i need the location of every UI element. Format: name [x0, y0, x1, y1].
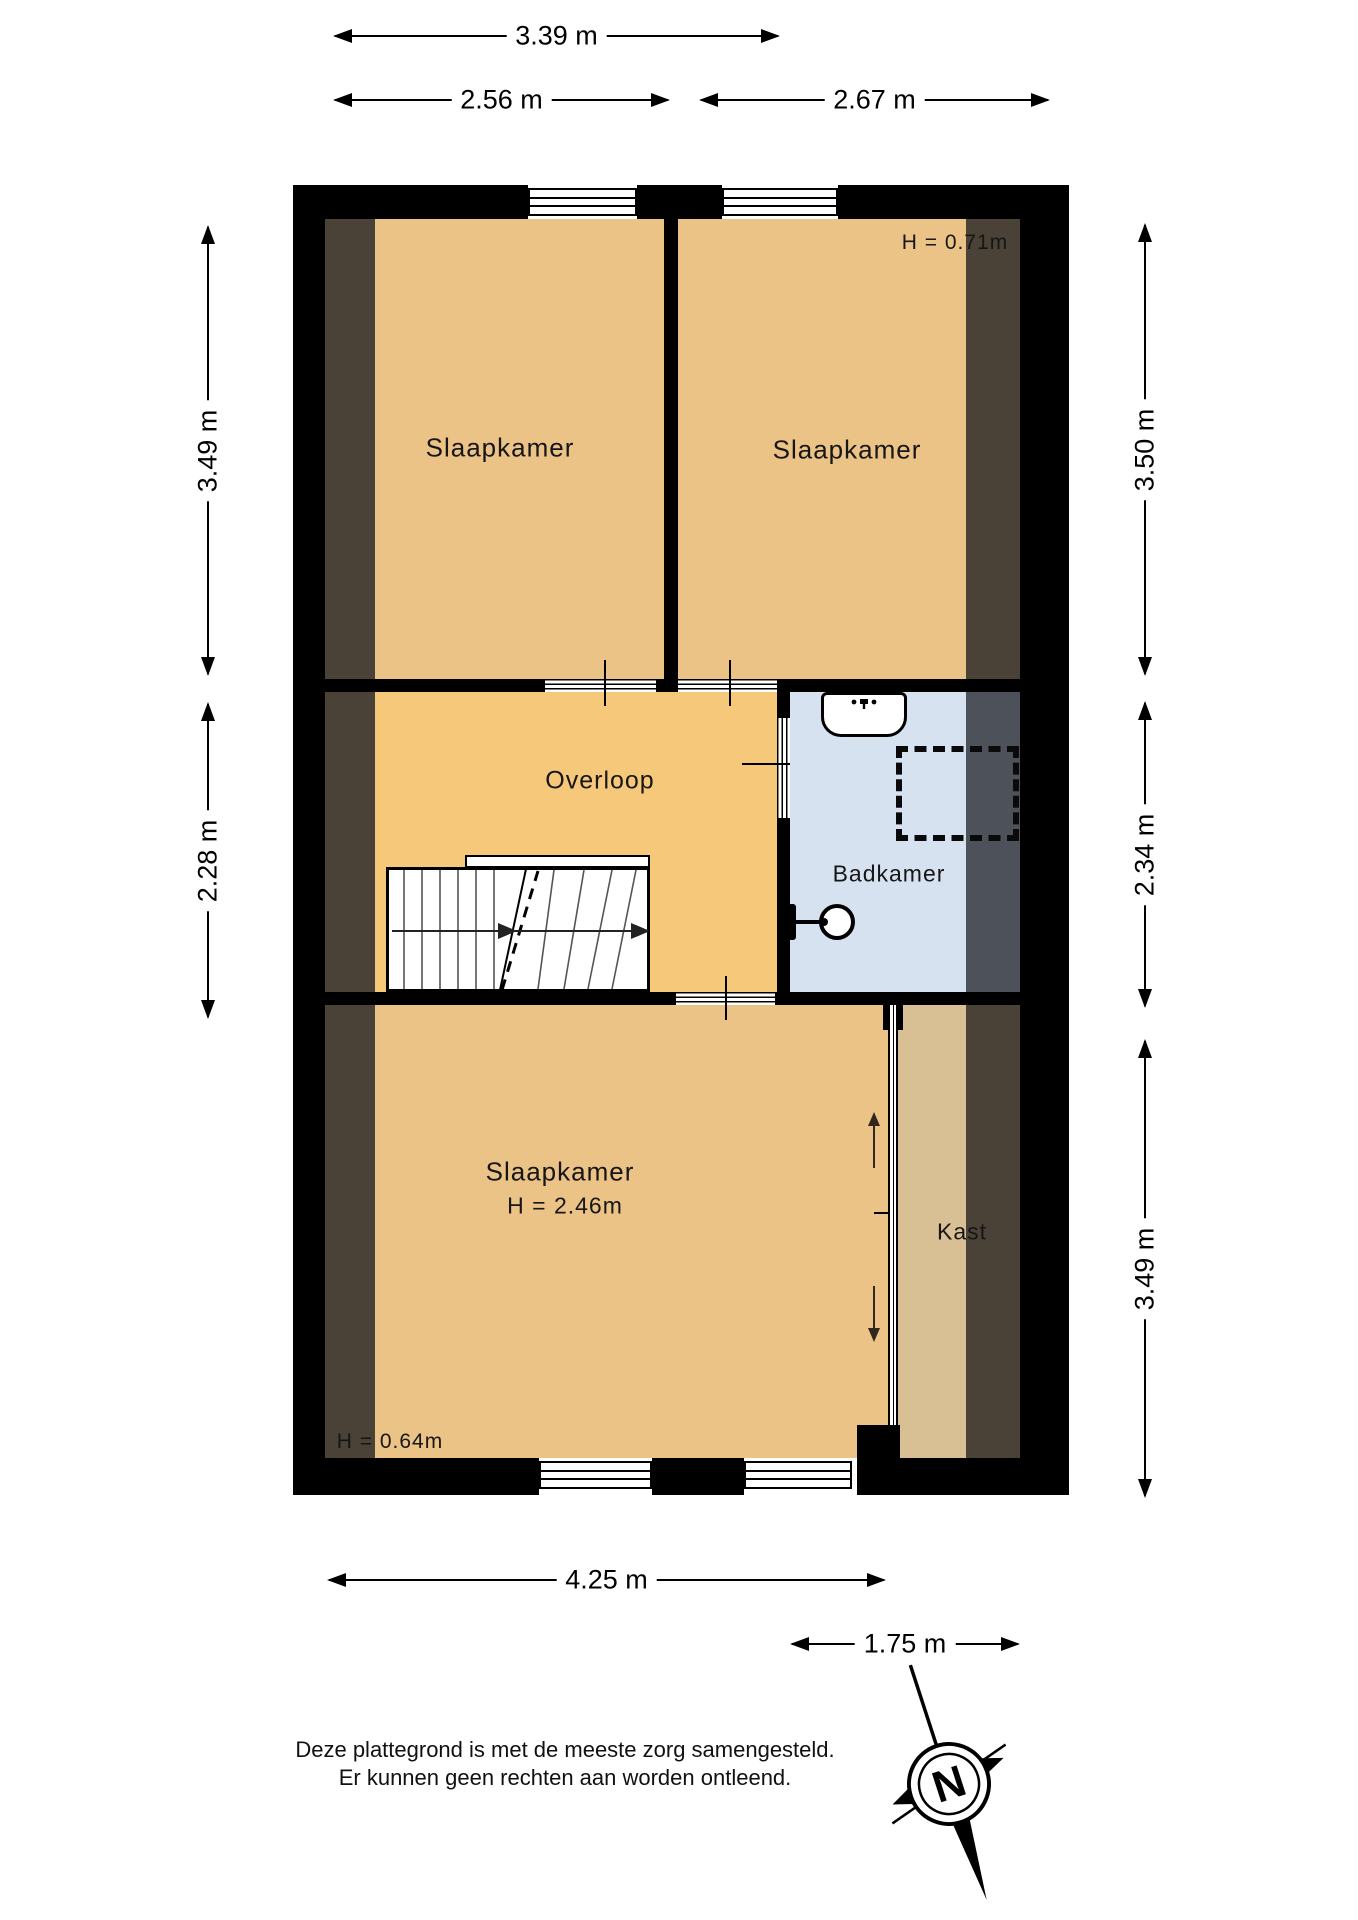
closet-partition [888, 1005, 898, 1425]
shower-head-icon [782, 898, 858, 946]
sloped-ceiling-strip-bathroom [966, 692, 1020, 992]
arrow-down-icon [201, 657, 215, 676]
wall-bottom-segment-2 [857, 1458, 1069, 1495]
wall-top-segment-1 [293, 185, 528, 219]
closet-partition-tick [874, 1212, 890, 1214]
window-top-1 [528, 188, 637, 216]
arrow-up-icon [201, 702, 215, 721]
dimension-top-left: 2.56 m [333, 92, 670, 108]
arrow-right-icon [1001, 1637, 1020, 1651]
arrow-up-icon [1138, 1039, 1152, 1058]
arrow-right-icon [761, 29, 780, 43]
door-tick-bedroom-bottom [725, 976, 727, 1020]
wall-bottom-segment-1 [293, 1458, 539, 1495]
wall-left [293, 185, 325, 1495]
compass-rose-icon: N [849, 1650, 1049, 1910]
shower-area [896, 746, 1019, 841]
label-bedroom-top-right: Slaapkamer [773, 435, 922, 466]
disclaimer-line-1: Deze plattegrond is met de meeste zorg s… [265, 1737, 865, 1763]
dimension-bottom-main: 4.25 m [327, 1572, 886, 1588]
arrow-up-icon [1138, 223, 1152, 242]
bathroom-floor [790, 692, 966, 992]
arrow-down-icon [201, 1000, 215, 1019]
arrow-down-icon [1138, 657, 1152, 676]
closet-divider-bottom-stub [857, 1425, 900, 1458]
bedroom-bottom-floor [375, 1005, 888, 1458]
sloped-ceiling-strip-left-bottom [325, 1005, 375, 1458]
door-tick-bathroom [742, 763, 790, 765]
wall-bathroom-top [777, 679, 1020, 692]
sloped-ceiling-strip-left-mid [325, 692, 375, 992]
dimension-right-middle: 2.34 m [1137, 701, 1153, 1008]
arrow-left-icon [333, 29, 352, 43]
door-bedroom-top-right [678, 679, 777, 692]
label-bedroom-bottom: Slaapkamer [486, 1157, 635, 1188]
label-landing: Overloop [545, 767, 654, 796]
wall-bedrooms-landing-stub [656, 679, 678, 692]
wall-bedroom-divider [664, 219, 678, 679]
window-bottom-1 [539, 1461, 652, 1489]
door-tick-bedroom-top-right [729, 660, 731, 706]
wall-landing-bedroom-segment-2 [775, 992, 1020, 1005]
label-height-bottom-room: H = 2.46m [507, 1193, 623, 1220]
wall-top-pier [637, 185, 722, 219]
door-bathroom [777, 718, 790, 818]
dimension-top-right: 2.67 m [699, 92, 1050, 108]
arrow-left-icon [327, 1573, 346, 1587]
wall-landing-bedroom-segment-1 [325, 992, 676, 1005]
arrow-down-icon [1138, 1479, 1152, 1498]
arrow-left-icon [699, 93, 718, 107]
arrow-up-icon [201, 225, 215, 244]
dimension-left-middle: 2.28 m [200, 702, 216, 1019]
dimension-right-top: 3.50 m [1137, 223, 1153, 676]
dimension-right-bottom: 3.49 m [1137, 1039, 1153, 1498]
dimension-left-top: 3.49 m [200, 225, 216, 676]
disclaimer-line-2: Er kunnen geen rechten aan worden ontlee… [265, 1765, 865, 1791]
arrow-right-icon [867, 1573, 886, 1587]
label-bathroom: Badkamer [833, 861, 946, 888]
window-top-2 [722, 188, 838, 216]
wall-bedrooms-landing-segment-1 [325, 679, 545, 692]
arrow-up-icon [1138, 701, 1152, 720]
wall-bathroom-left-upper [777, 692, 790, 718]
arrow-right-icon [651, 93, 670, 107]
wall-right [1020, 185, 1069, 1495]
staircase-treads [386, 867, 650, 992]
sloped-ceiling-strip-left-top [325, 219, 375, 679]
slope-arrow-up-icon [864, 1112, 884, 1170]
slope-arrow-down-icon [864, 1286, 884, 1342]
label-closet: Kast [937, 1219, 987, 1246]
window-bottom-2 [744, 1461, 852, 1489]
dimension-top-total: 3.39 m [333, 28, 780, 44]
arrow-left-icon [333, 93, 352, 107]
arrow-down-icon [1138, 989, 1152, 1008]
floor-plan: Slaapkamer Slaapkamer H = 0.71m Overloop… [0, 0, 1358, 1920]
faucet-icon [848, 697, 880, 711]
door-tick-bedroom-top-left [604, 660, 606, 706]
sloped-ceiling-strip-right-top [966, 219, 1020, 679]
arrow-right-icon [1031, 93, 1050, 107]
sink [821, 692, 907, 737]
wall-bottom-pier [652, 1458, 744, 1495]
arrow-left-icon [790, 1637, 809, 1651]
door-bedroom-top-left [545, 679, 656, 692]
label-bedroom-top-left: Slaapkamer [426, 433, 575, 464]
label-height-top-right: H = 0.71m [902, 231, 1008, 255]
label-height-bottom-left: H = 0.64m [337, 1430, 443, 1454]
